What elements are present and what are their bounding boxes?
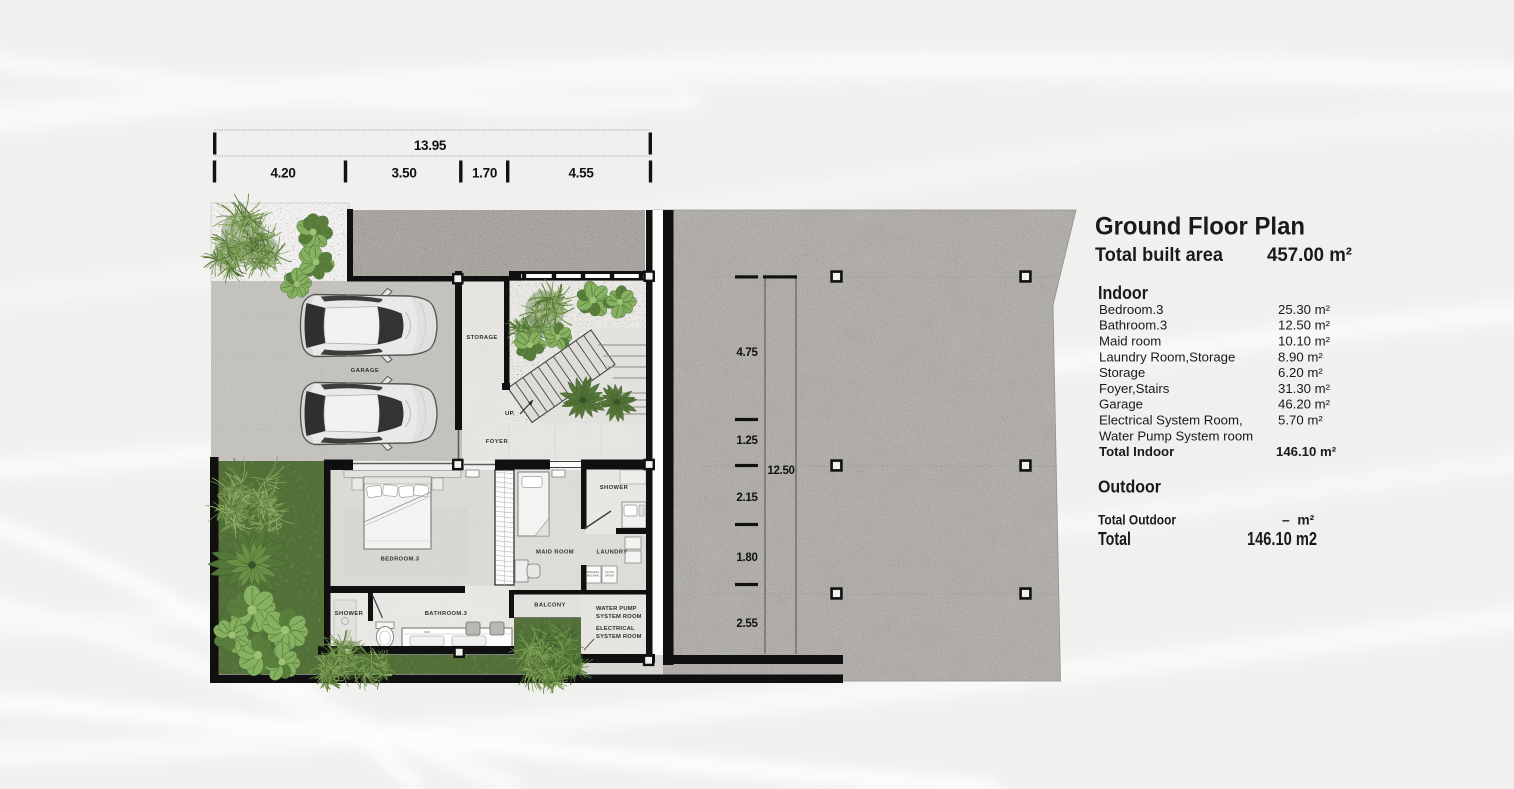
svg-text:MAID ROOM: MAID ROOM — [536, 550, 574, 556]
svg-text:SHOWER: SHOWER — [335, 611, 364, 617]
svg-text:ELECTRICAL: ELECTRICAL — [596, 626, 635, 632]
svg-text:10.10 m²: 10.10 m² — [1278, 333, 1331, 348]
svg-text:Indoor: Indoor — [1098, 282, 1148, 303]
svg-text:1.25: 1.25 — [736, 435, 758, 447]
svg-text:Outdoor: Outdoor — [1098, 476, 1161, 496]
svg-text:Ground Floor Plan: Ground Floor Plan — [1095, 213, 1305, 241]
svg-text:1.70: 1.70 — [472, 166, 497, 181]
svg-text:SYSTEM ROOM: SYSTEM ROOM — [596, 634, 642, 640]
svg-text:STORAGE: STORAGE — [466, 335, 497, 341]
svg-text:SHOWER: SHOWER — [600, 485, 629, 491]
svg-text:WATER PUMP: WATER PUMP — [596, 606, 637, 612]
svg-text:Total built area: Total built area — [1095, 245, 1223, 266]
svg-text:BALCONY: BALCONY — [534, 603, 565, 609]
svg-text:– m²: – m² — [1282, 512, 1315, 527]
svg-text:UP.: UP. — [505, 411, 515, 417]
svg-text:WASHING: WASHING — [587, 570, 599, 574]
svg-text:Total Outdoor: Total Outdoor — [1098, 512, 1177, 527]
svg-text:5.70 m²: 5.70 m² — [1278, 413, 1323, 428]
svg-text:Storage: Storage — [1099, 365, 1145, 380]
svg-text:Bathroom.3: Bathroom.3 — [1099, 318, 1167, 333]
svg-text:Maid room: Maid room — [1099, 333, 1161, 348]
svg-text:146.10 m2: 146.10 m2 — [1247, 528, 1317, 549]
svg-text:SINK: SINK — [424, 630, 431, 634]
svg-text:46.20 m²: 46.20 m² — [1278, 397, 1331, 412]
svg-text:25.30 m²: 25.30 m² — [1278, 302, 1331, 317]
svg-text:457.00 m²: 457.00 m² — [1267, 245, 1352, 266]
svg-text:4.20: 4.20 — [270, 166, 295, 181]
svg-text:FOYER: FOYER — [486, 439, 509, 445]
svg-text:MACHINE: MACHINE — [587, 574, 599, 578]
svg-text:4.55: 4.55 — [568, 166, 594, 181]
svg-text:4.75: 4.75 — [736, 347, 758, 359]
svg-text:31.30 m²: 31.30 m² — [1278, 381, 1331, 396]
svg-text:DRYER: DRYER — [605, 574, 614, 578]
svg-text:SYSTEM ROOM: SYSTEM ROOM — [596, 614, 642, 620]
svg-text:Foyer,Stairs: Foyer,Stairs — [1099, 381, 1170, 396]
svg-text:12.50: 12.50 — [767, 465, 794, 477]
svg-text:12.50 m²: 12.50 m² — [1278, 318, 1331, 333]
svg-text:Electrical System Room,: Electrical System Room, — [1099, 413, 1243, 428]
svg-text:13.95: 13.95 — [414, 138, 447, 153]
svg-text:BEDROOM.3: BEDROOM.3 — [381, 557, 420, 563]
svg-text:Total Indoor: Total Indoor — [1099, 444, 1174, 459]
svg-text:Garage: Garage — [1099, 397, 1143, 412]
svg-text:2.15: 2.15 — [736, 492, 758, 504]
svg-text:1.80: 1.80 — [736, 552, 757, 564]
svg-text:LAUNDRY: LAUNDRY — [597, 550, 628, 556]
svg-text:3.50: 3.50 — [391, 166, 416, 181]
svg-text:8.90 m²: 8.90 m² — [1278, 349, 1323, 364]
svg-text:6.20 m²: 6.20 m² — [1278, 365, 1323, 380]
svg-text:146.10 m²: 146.10 m² — [1276, 444, 1337, 459]
svg-text:Total: Total — [1098, 528, 1131, 549]
svg-text:BATHROOM.3: BATHROOM.3 — [425, 611, 468, 617]
svg-text:Water Pump System room: Water Pump System room — [1099, 428, 1253, 443]
svg-text:CLOTH: CLOTH — [605, 570, 614, 574]
svg-text:Bedroom.3: Bedroom.3 — [1099, 302, 1164, 317]
svg-text:GARAGE: GARAGE — [351, 368, 379, 374]
svg-text:Laundry Room,Storage: Laundry Room,Storage — [1099, 349, 1235, 364]
svg-text:2.55: 2.55 — [736, 618, 758, 630]
